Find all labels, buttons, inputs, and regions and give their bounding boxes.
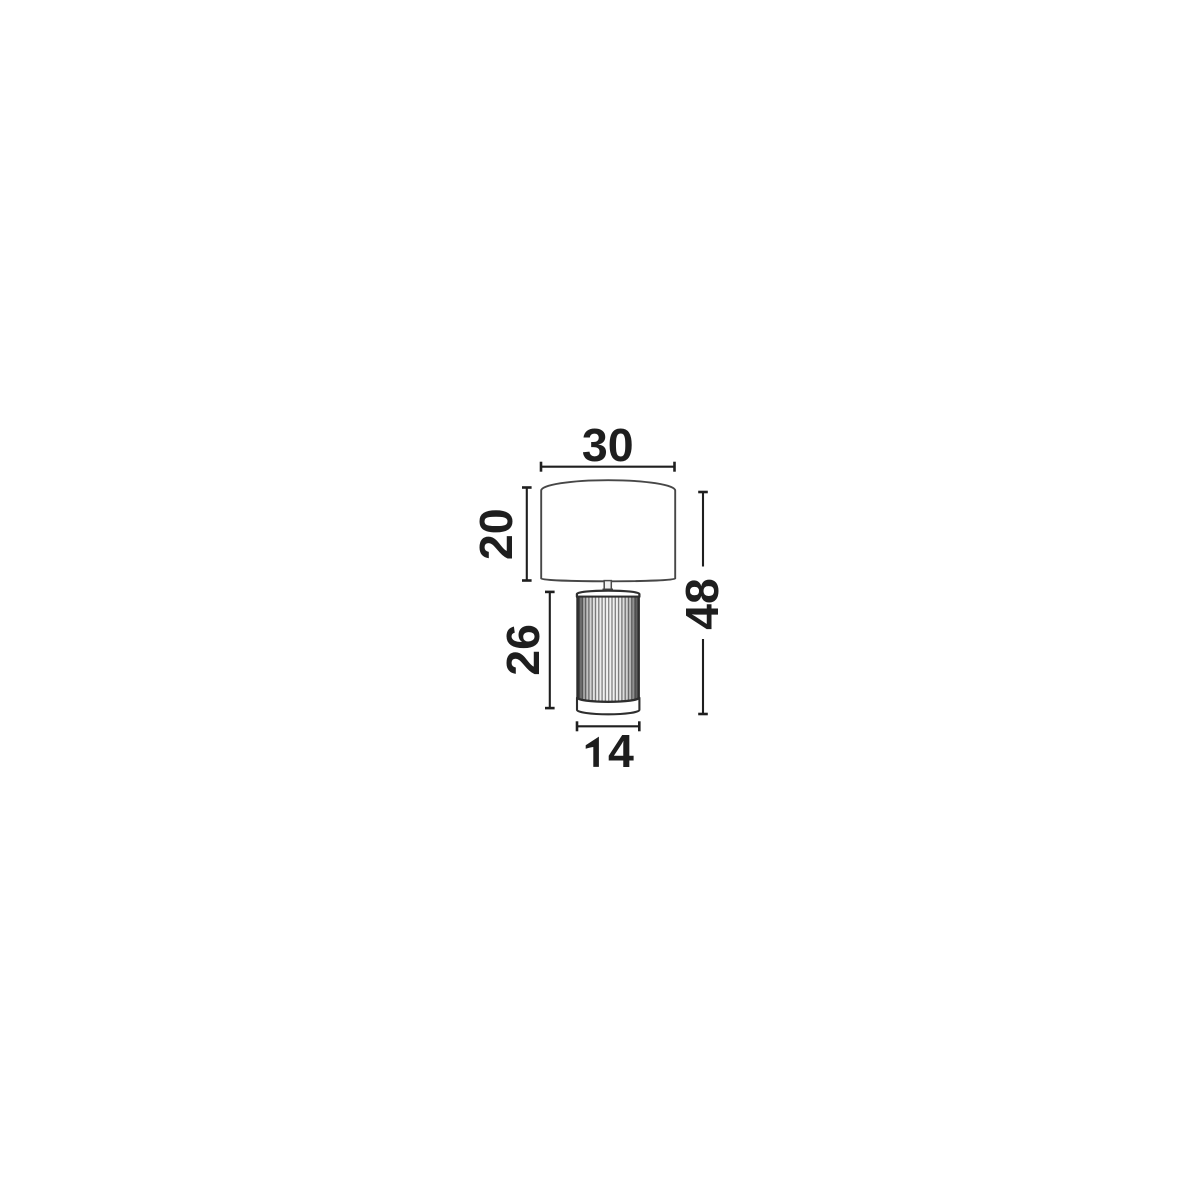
svg-text:30: 30 <box>582 419 634 471</box>
svg-text:48: 48 <box>676 578 728 630</box>
svg-text:20: 20 <box>470 508 522 560</box>
svg-text:4: 4 <box>608 725 634 777</box>
svg-text:26: 26 <box>497 624 549 676</box>
